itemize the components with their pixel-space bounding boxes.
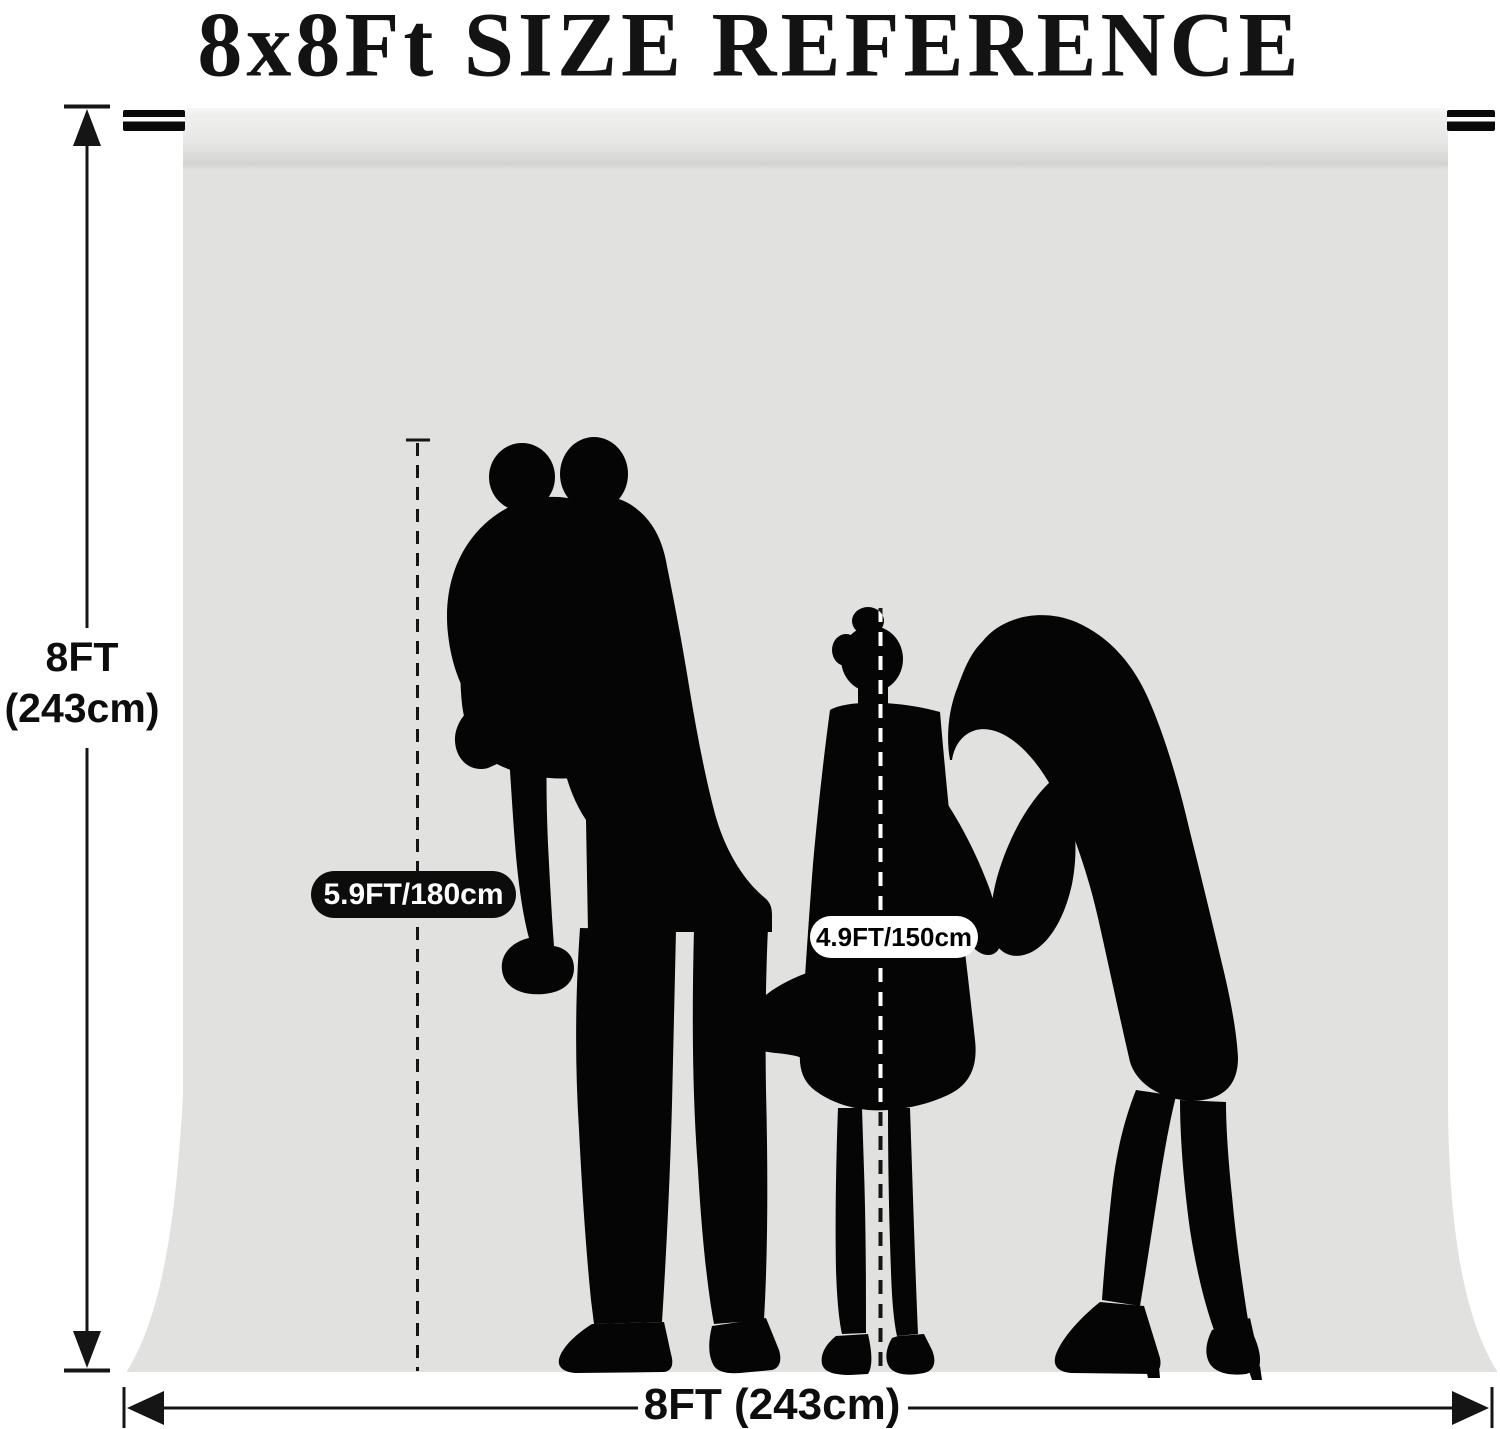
size-reference-diagram: 8x8Ft SIZE REFERENCE 8FT (243cm) 8FT (24… bbox=[0, 0, 1500, 1429]
stand-rod-right bbox=[1447, 110, 1495, 131]
stand-rod-left bbox=[123, 110, 185, 131]
man-left-leg bbox=[576, 928, 676, 1324]
girl-hair-puff bbox=[832, 634, 860, 666]
adult-height-badge: 5.9FT/180cm bbox=[311, 871, 516, 918]
height-dimension-arrow bbox=[64, 107, 110, 1371]
girl-left-leg bbox=[836, 1108, 866, 1334]
child-height-badge: 4.9FT/150cm bbox=[810, 916, 978, 958]
backdrop-fabric bbox=[127, 112, 1497, 1372]
backdrop-scene-graphic bbox=[0, 0, 1500, 1429]
width-dimension-label: 8FT (243cm) bbox=[572, 1382, 972, 1428]
height-dimension-feet: 8FT bbox=[0, 632, 164, 683]
height-dimension-cm: (243cm) bbox=[0, 683, 164, 734]
backdrop-roll bbox=[183, 108, 1448, 170]
height-dimension-label: 8FT (243cm) bbox=[0, 632, 164, 734]
mother-back-heel-spike bbox=[1248, 1366, 1262, 1380]
page-title: 8x8Ft SIZE REFERENCE bbox=[0, 0, 1500, 96]
